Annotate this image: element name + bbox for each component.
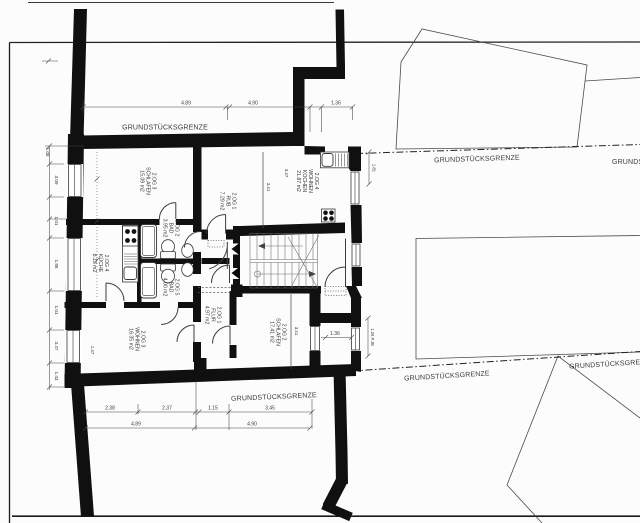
svg-text:GRUNDSTÜCKSGRENZE: GRUNDSTÜCKSGRENZE xyxy=(122,124,208,132)
svg-text:1.81: 1.81 xyxy=(372,164,377,173)
svg-text:1.26 P.JB: 1.26 P.JB xyxy=(370,328,375,346)
svg-text:1.47: 1.47 xyxy=(90,346,95,355)
svg-text:4.90: 4.90 xyxy=(248,101,258,107)
svg-text:1.88: 1.88 xyxy=(54,260,59,269)
svg-text:3.47: 3.47 xyxy=(54,342,59,351)
svg-text:3.09: 3.09 xyxy=(54,176,59,185)
svg-text:3.41: 3.41 xyxy=(266,183,271,192)
svg-text:15.09 m2: 15.09 m2 xyxy=(138,170,144,192)
svg-text:2.38: 2.38 xyxy=(105,406,115,412)
svg-text:4.89: 4.89 xyxy=(131,422,141,428)
svg-text:4.89: 4.89 xyxy=(181,101,191,107)
svg-text:KÜCHE: KÜCHE xyxy=(97,254,104,273)
svg-text:1.01: 1.01 xyxy=(54,306,59,315)
svg-text:21.87 m2: 21.87 m2 xyxy=(295,170,301,192)
svg-text:3.45: 3.45 xyxy=(265,406,275,412)
svg-text:1.36: 1.36 xyxy=(330,331,340,337)
svg-text:4.97 m2: 4.97 m2 xyxy=(203,306,209,325)
svg-text:1.01: 1.01 xyxy=(54,217,59,226)
svg-text:1.36: 1.36 xyxy=(331,101,341,107)
svg-text:3.47: 3.47 xyxy=(284,169,289,178)
svg-text:8.13 m2: 8.13 m2 xyxy=(91,254,97,273)
svg-text:2.37: 2.37 xyxy=(162,406,172,412)
svg-text:7.29 m2: 7.29 m2 xyxy=(218,192,224,211)
svg-text:1.43: 1.43 xyxy=(54,372,59,381)
svg-text:16.35 m2: 16.35 m2 xyxy=(127,328,133,350)
svg-text:3.41: 3.41 xyxy=(294,327,299,336)
svg-text:1.08: 1.08 xyxy=(45,148,50,157)
svg-text:17.41 m2: 17.41 m2 xyxy=(268,321,274,343)
svg-text:4.90: 4.90 xyxy=(247,422,257,428)
svg-text:1.15: 1.15 xyxy=(208,406,218,412)
svg-text:4.00 m2: 4.00 m2 xyxy=(161,278,167,297)
svg-text:3.95 m2: 3.95 m2 xyxy=(161,219,167,238)
svg-text:GRUNDSTÜCKSGRENZE: GRUNDSTÜCKSGRENZE xyxy=(612,158,640,166)
